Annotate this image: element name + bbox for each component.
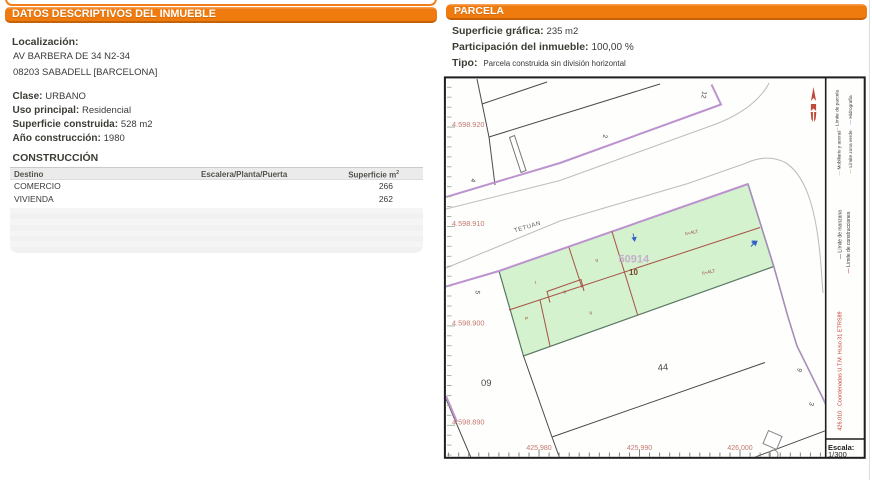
svg-text:4.598.910: 4.598.910 bbox=[452, 219, 484, 228]
svg-text:10: 10 bbox=[629, 268, 638, 277]
svg-text:44: 44 bbox=[657, 362, 669, 374]
svg-text:4.598.920: 4.598.920 bbox=[452, 120, 484, 129]
svg-text:4.598.900: 4.598.900 bbox=[452, 319, 484, 328]
svg-text:— Mobiliario y aceras: — Mobiliario y aceras bbox=[837, 130, 842, 176]
svg-text:4.598.890: 4.598.890 bbox=[452, 418, 484, 427]
svg-text:— Límite de construcciones: — Límite de construcciones bbox=[846, 211, 852, 273]
svg-text:— Límite de manzana: — Límite de manzana bbox=[838, 210, 844, 259]
svg-text:426.010 Coordenadas U.T.M. H: 426.010 Coordenadas U.T.M. Huso 31 ETRS8… bbox=[838, 311, 844, 430]
svg-text:50914: 50914 bbox=[619, 254, 650, 266]
svg-text:— Límite zona verde: — Límite zona verde bbox=[848, 130, 853, 174]
svg-text:09: 09 bbox=[481, 378, 492, 389]
svg-text:— Límite de parcela: — Límite de parcela bbox=[835, 90, 840, 132]
svg-text:— Hidrografía: — Hidrografía bbox=[848, 95, 853, 125]
